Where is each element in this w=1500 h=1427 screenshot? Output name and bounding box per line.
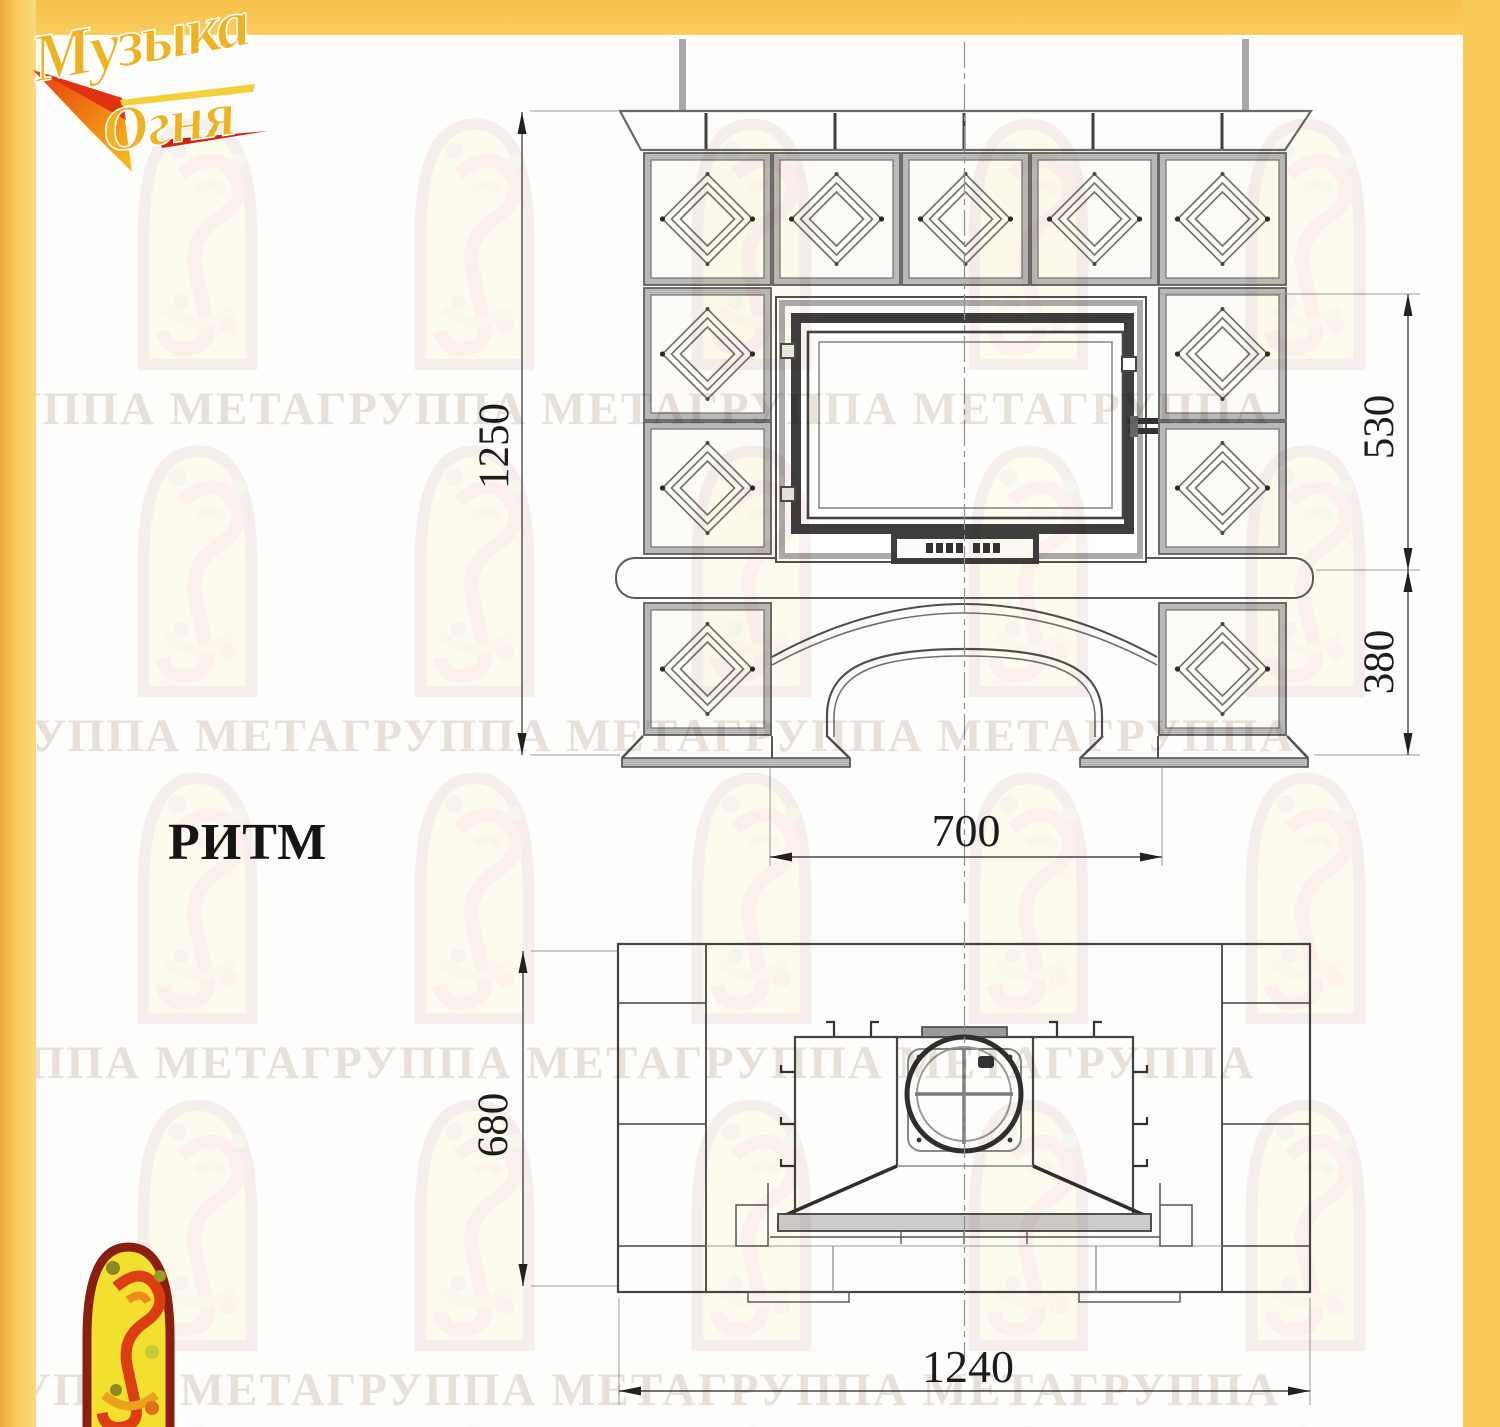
svg-text:ГРУППА МЕТАГРУППА МЕТАГРУППА М: ГРУППА МЕТАГРУППА МЕТАГРУППА МЕТАГРУППА [0, 1364, 1280, 1416]
svg-text:ГРУППА МЕТАГРУППА МЕТАГРУППА М: ГРУППА МЕТАГРУППА МЕТАГРУППА МЕТАГРУППА [0, 383, 1270, 435]
svg-text:530: 530 [1356, 395, 1403, 460]
svg-text:ГРУППА МЕТАГРУППА МЕТАГРУППА М: ГРУППА МЕТАГРУППА МЕТАГРУППА МЕТАГРУППА [0, 710, 1295, 762]
svg-text:ГРУППА МЕТАГРУППА МЕТАГРУППА М: ГРУППА МЕТАГРУППА МЕТАГРУППА МЕТАГРУППА [0, 1037, 1255, 1089]
